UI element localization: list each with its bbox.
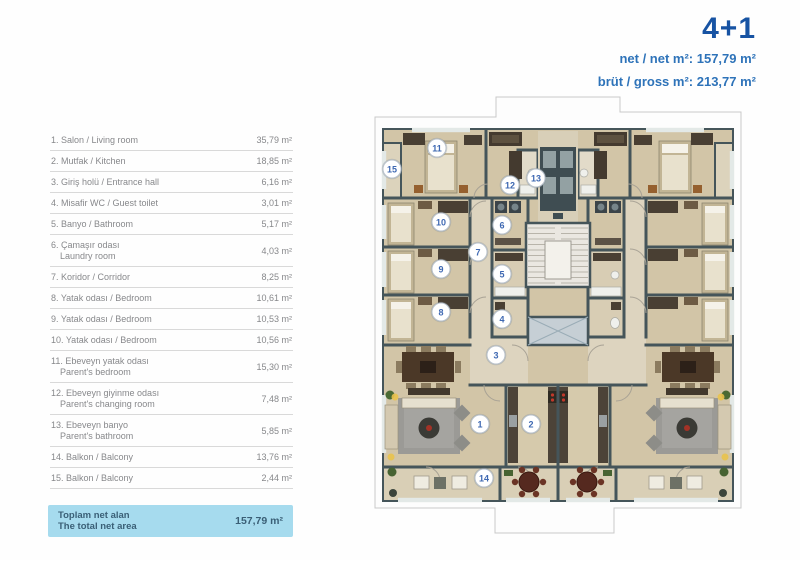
room-marker: 6 xyxy=(492,215,513,236)
room-area: 8,25 m² xyxy=(255,272,292,282)
total-label: Toplam net alanThe total net area xyxy=(58,510,137,532)
table-row: 13. Ebeveyn banyoParent's bathroom5,85 m… xyxy=(50,415,293,447)
room-area: 10,56 m² xyxy=(250,335,292,345)
room-area: 35,79 m² xyxy=(250,135,292,145)
room-label: 2. Mutfak / Kitchen xyxy=(51,156,126,167)
room-area: 15,30 m² xyxy=(250,362,292,372)
room-rows: 1. Salon / Living room35,79 m²2. Mutfak … xyxy=(50,130,293,489)
floor-plan: 123456789101112131415 xyxy=(368,95,768,560)
svg-text:3: 3 xyxy=(493,351,498,361)
room-label: 6. Çamaşır odasıLaundry room xyxy=(51,240,120,262)
room-label: 3. Giriş holü / Entrance hall xyxy=(51,177,159,188)
room-area: 4,03 m² xyxy=(255,246,292,256)
svg-text:13: 13 xyxy=(531,174,541,184)
room-label: 7. Koridor / Corridor xyxy=(51,272,130,283)
room-marker: 4 xyxy=(492,309,513,330)
plan-svg: 123456789101112131415 xyxy=(368,95,768,560)
apartment-type: 4+1 xyxy=(598,14,756,44)
room-marker: 12 xyxy=(500,175,521,196)
svg-text:8: 8 xyxy=(438,308,443,318)
table-row: 14. Balkon / Balcony13,76 m² xyxy=(50,447,293,468)
room-label: 15. Balkon / Balcony xyxy=(51,473,133,484)
room-marker: 2 xyxy=(521,414,542,435)
table-row: 1. Salon / Living room35,79 m² xyxy=(50,130,293,151)
room-label: 12. Ebeveyn giyinme odasıParent's changi… xyxy=(51,388,159,410)
room-table: 1. Salon / Living room35,79 m²2. Mutfak … xyxy=(50,130,293,489)
svg-text:15: 15 xyxy=(387,165,397,175)
room-marker: 1 xyxy=(470,414,491,435)
svg-text:4: 4 xyxy=(499,315,504,325)
room-marker: 9 xyxy=(431,259,452,280)
unit-right xyxy=(558,128,734,502)
table-row: 3. Giriş holü / Entrance hall6,16 m² xyxy=(50,172,293,193)
gross-area-line: brüt / gross m²: 213,77 m² xyxy=(598,74,756,90)
room-label: 9. Yatak odası / Bedroom xyxy=(51,314,152,325)
net-area-line: net / net m²: 157,79 m² xyxy=(598,51,756,67)
svg-text:12: 12 xyxy=(505,181,515,191)
room-marker: 5 xyxy=(492,264,513,285)
room-area: 3,01 m² xyxy=(255,198,292,208)
room-label: 5. Banyo / Bathroom xyxy=(51,219,133,230)
room-marker: 10 xyxy=(431,212,452,233)
room-area: 18,85 m² xyxy=(250,156,292,166)
total-box: Toplam net alanThe total net area 157,79… xyxy=(48,505,293,537)
room-label: 13. Ebeveyn banyoParent's bathroom xyxy=(51,420,133,442)
room-area: 6,16 m² xyxy=(255,177,292,187)
room-marker: 8 xyxy=(431,302,452,323)
room-area: 10,53 m² xyxy=(250,314,292,324)
room-label: 4. Misafir WC / Guest toilet xyxy=(51,198,158,209)
table-row: 10. Yatak odası / Bedroom10,56 m² xyxy=(50,330,293,351)
table-row: 12. Ebeveyn giyinme odasıParent's changi… xyxy=(50,383,293,415)
svg-text:1: 1 xyxy=(477,420,482,430)
svg-text:11: 11 xyxy=(432,144,442,154)
table-row: 4. Misafir WC / Guest toilet3,01 m² xyxy=(50,193,293,214)
svg-text:10: 10 xyxy=(436,218,446,228)
room-marker: 13 xyxy=(526,168,547,189)
svg-text:5: 5 xyxy=(499,270,504,280)
svg-text:7: 7 xyxy=(475,248,480,258)
room-label: 8. Yatak odası / Bedroom xyxy=(51,293,152,304)
room-label: 14. Balkon / Balcony xyxy=(51,452,133,463)
room-marker: 3 xyxy=(486,345,507,366)
svg-text:6: 6 xyxy=(499,221,504,231)
room-area: 7,48 m² xyxy=(255,394,292,404)
table-row: 8. Yatak odası / Bedroom10,61 m² xyxy=(50,288,293,309)
room-area: 13,76 m² xyxy=(250,452,292,462)
svg-text:2: 2 xyxy=(528,420,533,430)
room-area: 10,61 m² xyxy=(250,293,292,303)
total-value: 157,79 m² xyxy=(235,515,283,527)
room-marker: 11 xyxy=(427,138,448,159)
svg-text:9: 9 xyxy=(438,265,443,275)
header: 4+1 net / net m²: 157,79 m² brüt / gross… xyxy=(598,14,756,91)
table-row: 9. Yatak odası / Bedroom10,53 m² xyxy=(50,309,293,330)
table-row: 11. Ebeveyn yatak odasıParent's bedroom1… xyxy=(50,351,293,383)
room-label: 1. Salon / Living room xyxy=(51,135,138,146)
table-row: 7. Koridor / Corridor8,25 m² xyxy=(50,267,293,288)
table-row: 2. Mutfak / Kitchen18,85 m² xyxy=(50,151,293,172)
table-row: 5. Banyo / Bathroom5,17 m² xyxy=(50,214,293,235)
room-marker: 15 xyxy=(382,159,403,180)
room-label: 11. Ebeveyn yatak odasıParent's bedroom xyxy=(51,356,149,378)
table-row: 15. Balkon / Balcony2,44 m² xyxy=(50,468,293,489)
brochure-page: 4+1 net / net m²: 157,79 m² brüt / gross… xyxy=(0,0,800,560)
room-label: 10. Yatak odası / Bedroom xyxy=(51,335,157,346)
room-area: 2,44 m² xyxy=(255,473,292,483)
svg-text:14: 14 xyxy=(479,474,489,484)
room-marker: 7 xyxy=(468,242,489,263)
room-area: 5,17 m² xyxy=(255,219,292,229)
room-area: 5,85 m² xyxy=(255,426,292,436)
room-marker: 14 xyxy=(474,468,495,489)
table-row: 6. Çamaşır odasıLaundry room4,03 m² xyxy=(50,235,293,267)
